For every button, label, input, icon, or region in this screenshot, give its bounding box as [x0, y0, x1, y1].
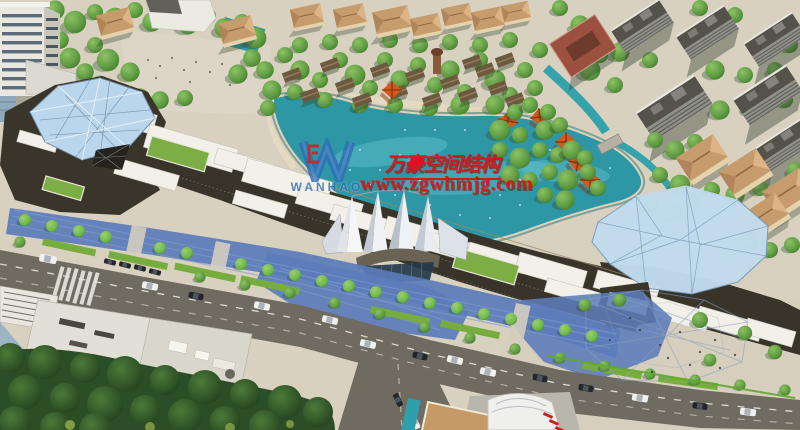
watermark-website: www.zgwhmjg.com [360, 173, 533, 196]
rendered-scene [0, 0, 800, 430]
white-slab-building [146, 0, 216, 32]
aerial-rendering: WANHAO 万豪空间结构 www.zgwhmjg.com [0, 0, 800, 430]
logo-red-mark [309, 146, 319, 162]
